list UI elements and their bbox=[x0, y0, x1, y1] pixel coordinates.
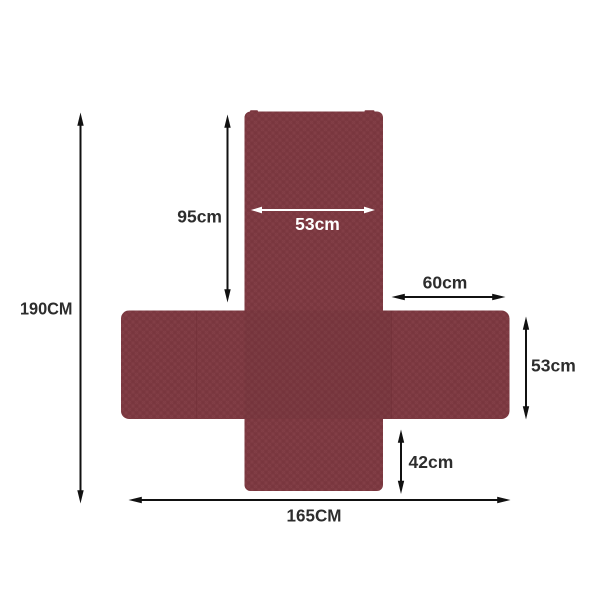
svg-text:53cm: 53cm bbox=[295, 214, 340, 234]
svg-text:60cm: 60cm bbox=[423, 273, 468, 293]
svg-text:190CM: 190CM bbox=[20, 299, 73, 319]
svg-text:42cm: 42cm bbox=[409, 452, 454, 472]
svg-text:95cm: 95cm bbox=[177, 207, 222, 227]
svg-text:53cm: 53cm bbox=[531, 356, 576, 376]
svg-text:165CM: 165CM bbox=[287, 506, 342, 526]
